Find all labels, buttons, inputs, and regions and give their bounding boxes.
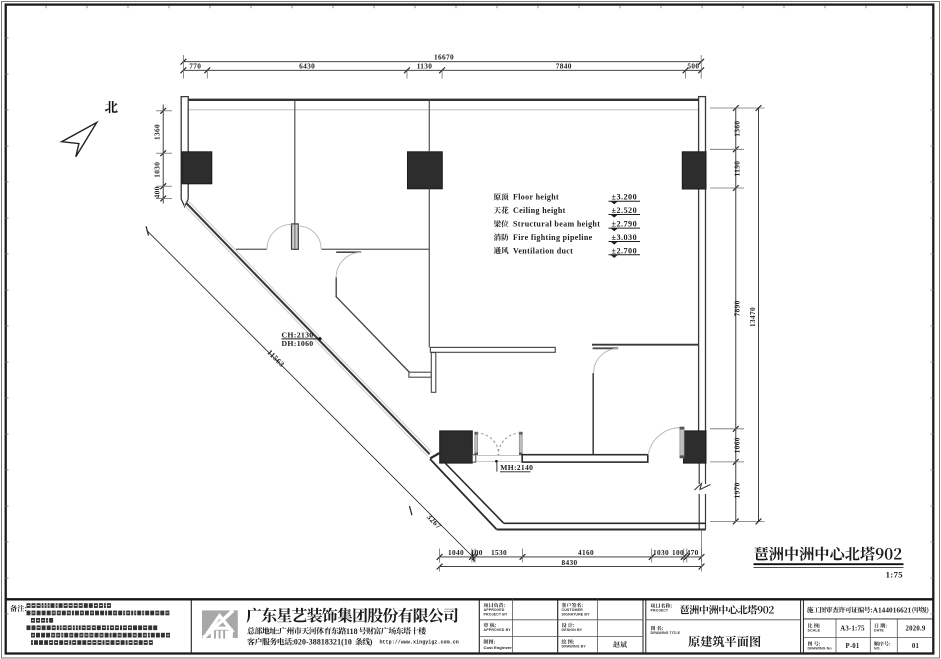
svg-text:1060: 1060 (732, 437, 741, 453)
svg-text:7890: 7890 (732, 300, 741, 316)
svg-text:DH:1060: DH:1060 (282, 339, 314, 348)
svg-text:13470: 13470 (748, 307, 757, 327)
svg-text:1190: 1190 (732, 161, 741, 177)
svg-text:DRAWING BY: DRAWING BY (562, 645, 587, 649)
svg-text:1030: 1030 (653, 548, 669, 557)
svg-text:DATE: DATE (874, 629, 884, 633)
svg-text:16670: 16670 (434, 53, 454, 62)
svg-text:7840: 7840 (556, 61, 572, 70)
svg-text:1970: 1970 (732, 482, 741, 498)
svg-text:DRAWING TITLE: DRAWING TITLE (651, 631, 681, 635)
svg-text:±3.030: ±3.030 (612, 233, 638, 242)
svg-text:01: 01 (912, 643, 920, 650)
svg-text:Ventilation duct: Ventilation duct (513, 246, 573, 255)
svg-text:Structural beam height: Structural beam height (513, 220, 600, 229)
svg-text:1530: 1530 (491, 548, 507, 557)
svg-text:DRAWING No: DRAWING No (808, 647, 833, 651)
svg-text:Ceiling height: Ceiling height (513, 206, 566, 215)
svg-text:±2.790: ±2.790 (612, 220, 638, 229)
svg-text:118: 118 (346, 627, 358, 636)
svg-text:±3.200: ±3.200 (612, 193, 638, 202)
svg-text:020-38818321(10: 020-38818321(10 (294, 638, 352, 647)
svg-text:SIGNATURE BY: SIGNATURE BY (562, 612, 591, 616)
svg-text:Cost Engineer: Cost Engineer (484, 645, 513, 650)
svg-text:8430: 8430 (562, 558, 578, 567)
svg-text:APPROVED BY: APPROVED BY (484, 628, 512, 632)
svg-text:P-01: P-01 (845, 643, 859, 650)
svg-text:1360: 1360 (153, 124, 162, 140)
svg-text:1030: 1030 (153, 162, 162, 178)
svg-text:1130: 1130 (417, 61, 433, 70)
svg-text:400: 400 (153, 186, 162, 198)
svg-text:Fire fighting pipeline: Fire fighting pipeline (513, 233, 593, 242)
svg-text:DESIGN BY: DESIGN BY (562, 628, 583, 632)
svg-text:A3-1:75: A3-1:75 (840, 626, 865, 633)
svg-text:±2.520: ±2.520 (612, 206, 638, 215)
svg-text:770: 770 (189, 61, 201, 70)
svg-text:6430: 6430 (299, 61, 315, 70)
svg-text:A144016621: A144016621 (873, 606, 912, 614)
svg-text:PROJECT: PROJECT (651, 609, 669, 613)
svg-text:1360: 1360 (732, 121, 741, 137)
svg-text:MH:2140: MH:2140 (500, 463, 533, 472)
svg-text:±2.700: ±2.700 (612, 246, 638, 255)
svg-text:): ) (370, 638, 373, 647)
svg-text:PROJECT BY: PROJECT BY (484, 612, 508, 616)
svg-text:1:75: 1:75 (886, 569, 903, 579)
svg-text:2020.9: 2020.9 (906, 626, 926, 633)
svg-text:SCALE: SCALE (808, 629, 821, 633)
svg-text:http://www.xingyigz.com.cn: http://www.xingyigz.com.cn (380, 640, 459, 646)
svg-text:500: 500 (687, 61, 699, 70)
svg-text:4160: 4160 (578, 548, 594, 557)
svg-text:100: 100 (672, 548, 684, 557)
svg-text:Floor height: Floor height (513, 193, 559, 202)
svg-text:NO.: NO. (874, 647, 881, 651)
svg-text:1040: 1040 (448, 548, 464, 557)
svg-text:470: 470 (687, 548, 699, 557)
